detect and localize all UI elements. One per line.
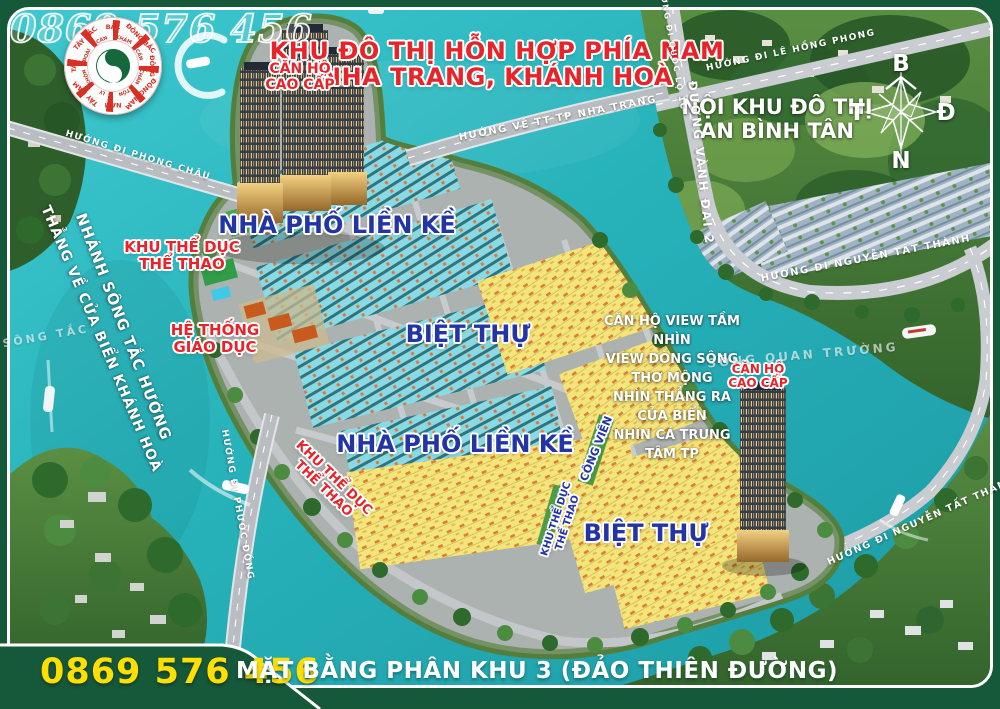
- fengshui-compass-logo: BẮC ĐÔNG BẮC ĐÔNG ĐÔNG NAM NAM TÂY NAM T…: [64, 17, 162, 115]
- compass-south-label: N: [891, 148, 910, 174]
- label-townhouse-north: NHÀ PHỐ LIỀN KỀ: [218, 212, 456, 240]
- compass-north-label: B: [892, 51, 910, 77]
- masterplan-poster: 0869 576 456 BẮC ĐÔNG BẮC ĐÔNG ĐÔNG NAM …: [0, 0, 1000, 709]
- footer-plan-title: MẶT BẰNG PHÂN KHU 3 (ĐẢO THIÊN ĐƯỜNG): [236, 658, 838, 684]
- label-villa-south: BIỆT THỰ: [584, 520, 709, 548]
- label-education: HỆ THỐNGGIÁO DỤC: [171, 322, 259, 357]
- district-label-an-binh-tan: NỘI KHU ĐÔ THỊ: [681, 95, 872, 119]
- fengshui-direction: BẮC: [106, 23, 121, 31]
- yin-yang-icon: [96, 49, 130, 83]
- poster-title-line1: KHU ĐÔ THỊ HỖN HỢP PHÍA NAM: [270, 38, 725, 66]
- label-sports-north: KHU THỂ DỤCTHỂ THAO: [124, 239, 239, 274]
- fengshui-direction: ĐÔNG: [148, 55, 156, 77]
- label-townhouse-south: NHÀ PHỐ LIỀN KỀ: [336, 431, 574, 459]
- apartment-view-callout: CĂN HỘ VIEW TẦM NHÌNVIEW DÒNG SÔNG THƠ M…: [596, 312, 748, 464]
- label-villa-east: BIỆT THỰ: [406, 321, 531, 349]
- compass-west-label: T: [849, 100, 865, 126]
- district-label-an-binh-tan-2: AN BÌNH TÂN: [700, 119, 854, 143]
- fengshui-direction: TÂY: [70, 59, 78, 72]
- label-apartment-north: CĂN HỘCAO CẤP: [265, 61, 334, 93]
- compass-east-label: Đ: [936, 100, 955, 126]
- poster-title-line2: NHA TRANG, KHÁNH HOÀ: [321, 64, 673, 92]
- fengshui-direction: NAM: [105, 101, 122, 109]
